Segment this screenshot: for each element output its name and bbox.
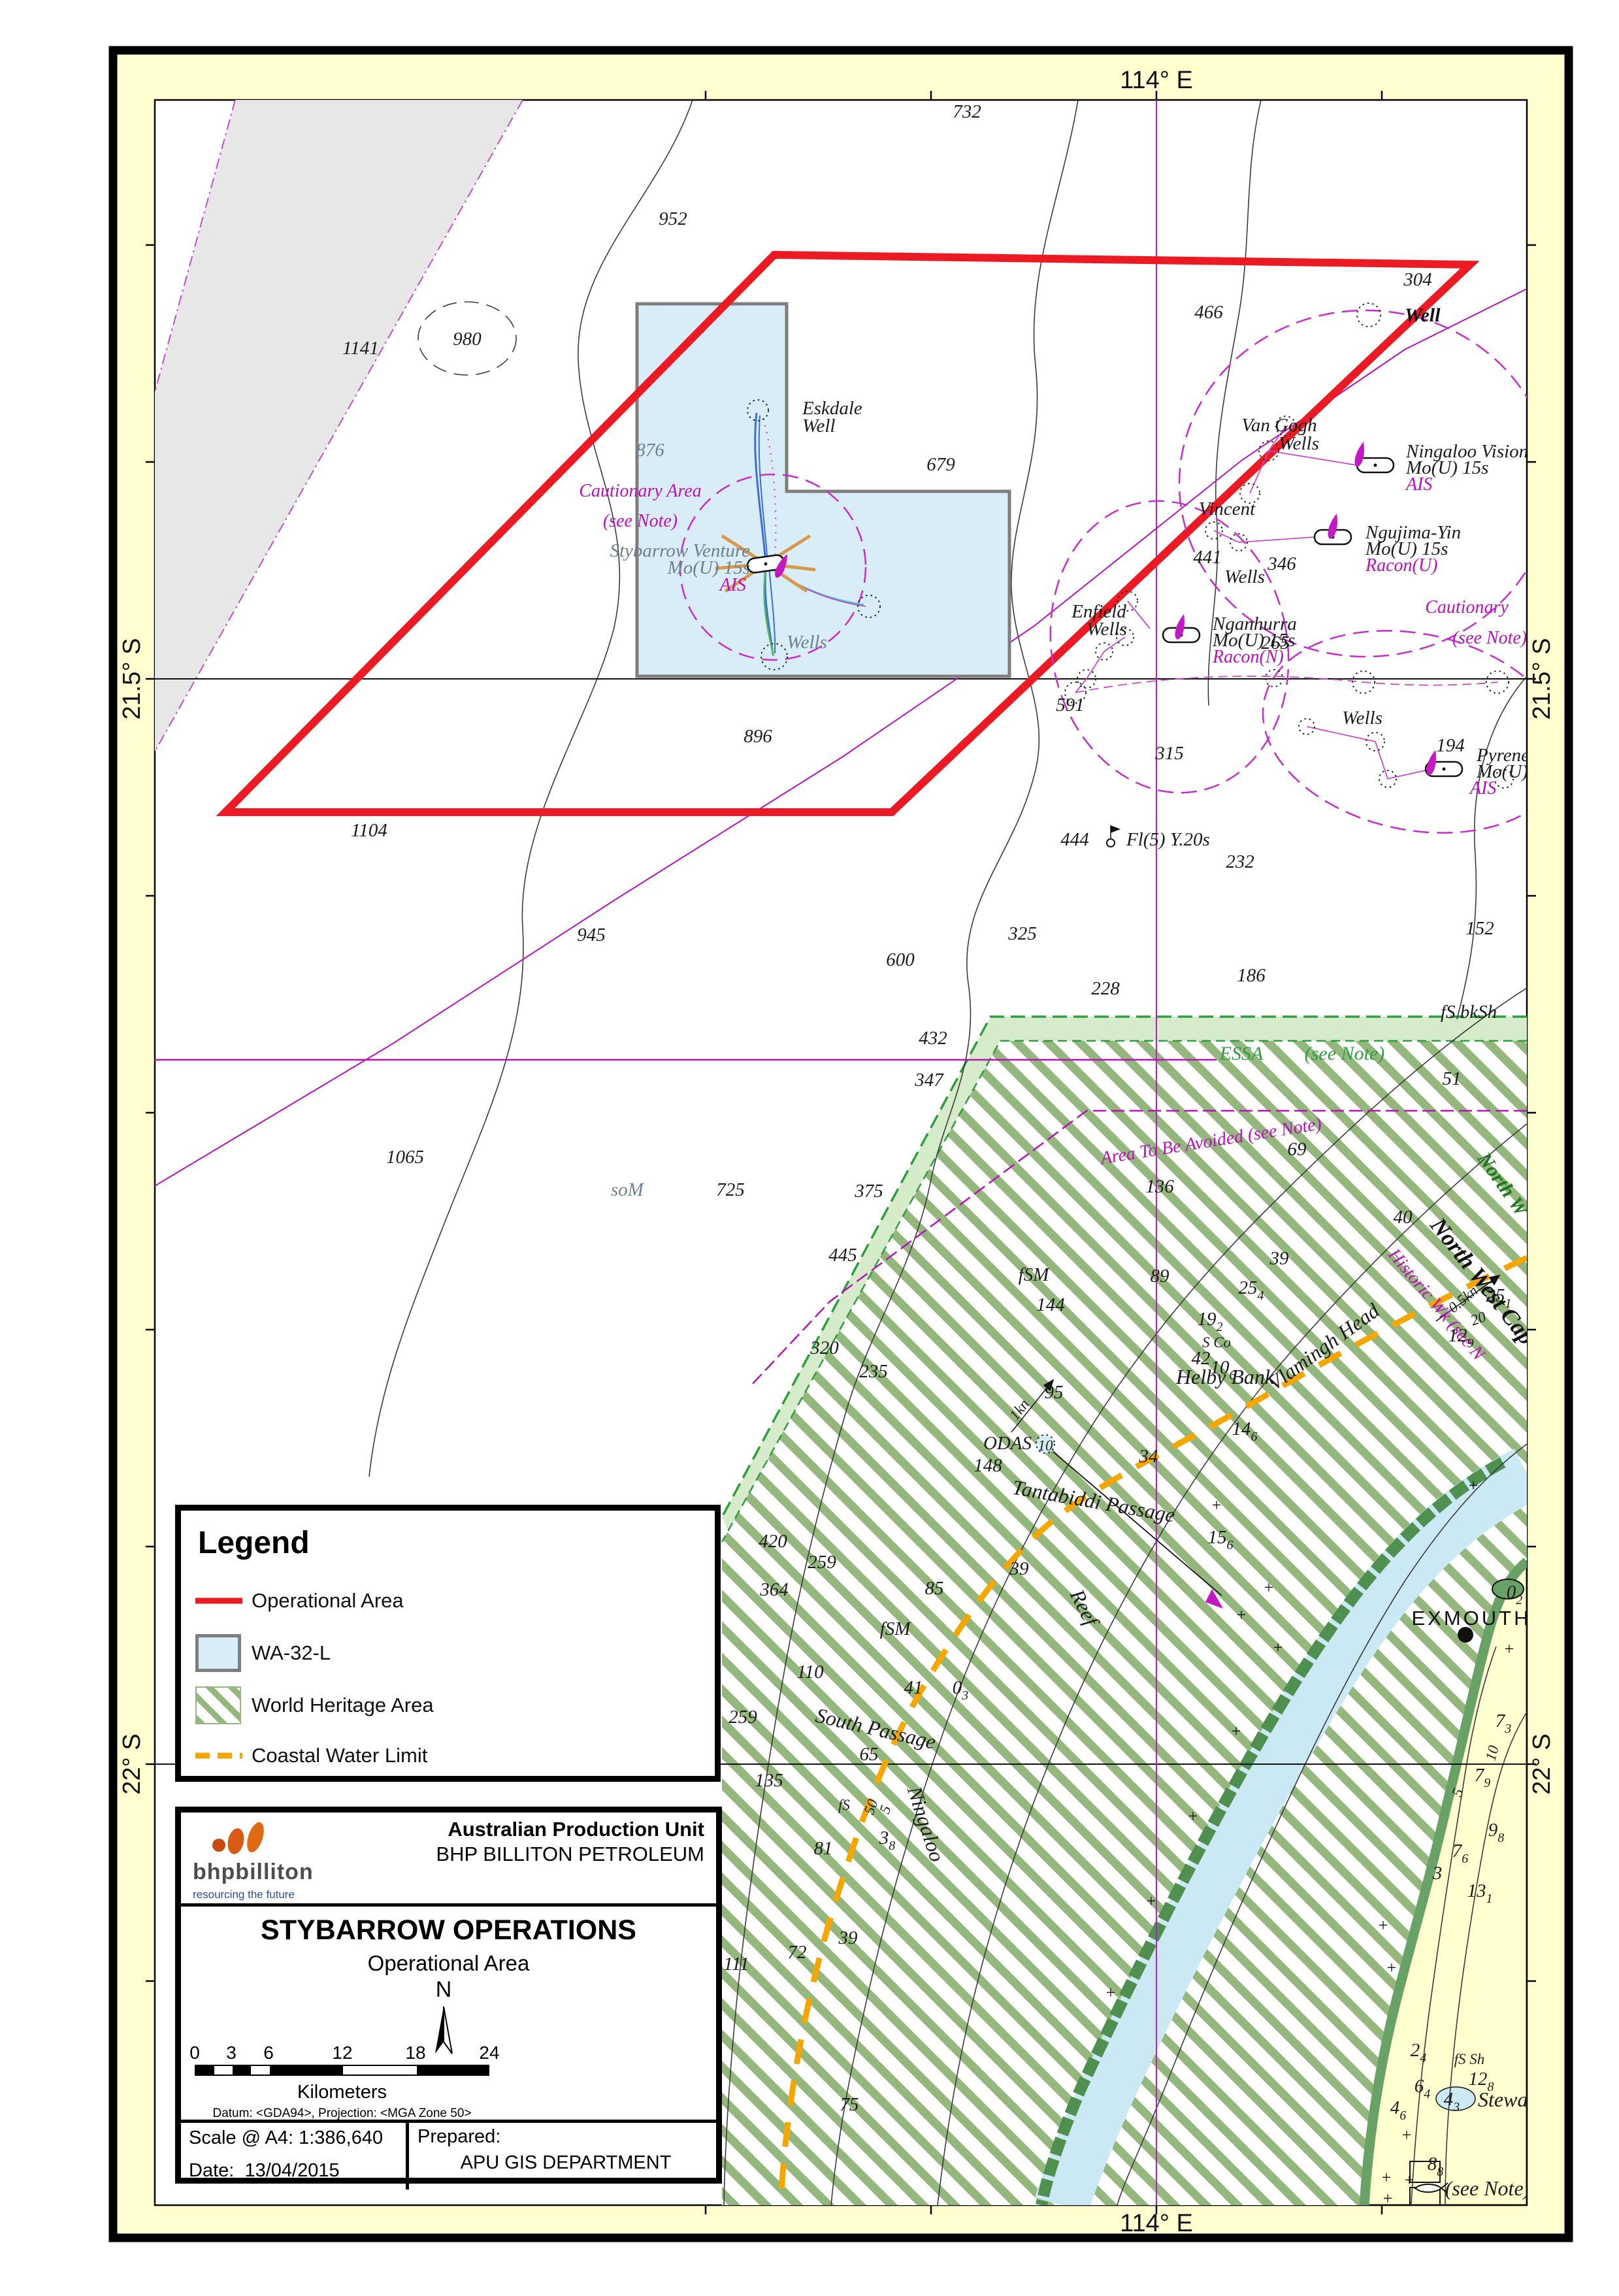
divider (181, 2120, 716, 2123)
margin-coordinate-label: 114° E (1120, 67, 1193, 94)
map-label: 364 (759, 1579, 789, 1600)
map-label: ESSA (1219, 1043, 1264, 1064)
map-label: 65 (860, 1744, 879, 1765)
rock-cross: + (1237, 1605, 1247, 1624)
map-label: 136 (1145, 1176, 1174, 1197)
map-label: 135 (755, 1770, 783, 1791)
map-label: fSM (880, 1618, 912, 1639)
map-label: 40 (1394, 1207, 1413, 1228)
map-label: Cautionary (1425, 597, 1509, 617)
legend-box: Legend Operational Area WA-32-L World He… (175, 1505, 721, 1782)
brand-name: bhpbilliton (193, 1860, 314, 1885)
chart-page: ++++++++++++++++ 73295298011418766794663… (0, 0, 1619, 2293)
map-label: 152 (1465, 918, 1494, 939)
map-label: 347 (914, 1070, 944, 1091)
map-label: Well (1405, 304, 1441, 326)
margin-coordinate-label: 22° S (1528, 1733, 1556, 1794)
map-title: STYBARROW OPERATIONS (181, 1914, 716, 1946)
legend-heritage-symbol (195, 1686, 241, 1724)
map-subtitle: Operational Area (181, 1951, 716, 1976)
legend-wa32l-symbol (195, 1634, 241, 1672)
scale-text: Scale @ A4: 1:386,640 (189, 2127, 383, 2149)
map-label: 194 (1436, 735, 1465, 756)
map-label: 600 (886, 949, 915, 970)
map-label: AIS (1469, 778, 1496, 798)
map-label: 265 (1261, 632, 1290, 653)
map-label: AIS (719, 575, 746, 595)
map-label: 75 (840, 2094, 859, 2115)
title-block: Australian Production Unit BHP BILLITON … (175, 1807, 722, 2184)
bhp-logo-icon (207, 1816, 279, 1862)
prepared-value: APU GIS DEPARTMENT (409, 2152, 723, 2174)
rock-cross: + (1383, 2189, 1393, 2208)
map-label: 466 (1194, 302, 1223, 323)
rock-cross: + (1405, 2171, 1415, 2189)
map-label: 945 (577, 925, 606, 945)
map-label: fS bkSh (1441, 1002, 1497, 1023)
map-label: 346 (1267, 553, 1296, 574)
date-text: Date: 13/04/2015 (189, 2160, 340, 2182)
map-label: 51 (1443, 1068, 1462, 1089)
rock-cross: + (1147, 1892, 1156, 1911)
map-label: EXMOUTH (1412, 1607, 1531, 1630)
map-label: Racon(U) (1365, 555, 1437, 576)
map-label: fS Sh (1454, 2051, 1485, 2067)
margin-coordinate-label: 22° S (118, 1733, 146, 1794)
legend-item-label: Operational Area (252, 1589, 404, 1613)
map-label: AIS (1405, 474, 1432, 495)
map-label: 1065 (386, 1147, 424, 1168)
divider (181, 1903, 716, 1907)
brand-tagline: resourcing the future (193, 1888, 295, 1901)
map-label: 1141 (342, 338, 379, 359)
map-label: (see Note) (1305, 1043, 1384, 1064)
map-label: 441 (1193, 547, 1222, 568)
map-label: 375 (854, 1181, 883, 1202)
rock-cross: + (1232, 1722, 1241, 1741)
rock-cross: + (1387, 1958, 1397, 1977)
map-label: 69 (1288, 1139, 1307, 1160)
north-label: N (429, 1977, 458, 2003)
map-label: soM (611, 1179, 645, 1200)
legend-item-label: WA-32-L (252, 1641, 331, 1665)
legend-item-label: World Heritage Area (252, 1694, 434, 1717)
map-label: fSM (1019, 1264, 1051, 1285)
map-label: 259 (728, 1707, 757, 1728)
map-label: 41 (904, 1677, 923, 1698)
map-label: 325 (1007, 923, 1037, 944)
map-label: 85 (925, 1578, 944, 1599)
map-label: 72 (788, 1942, 807, 1963)
scale-bar (195, 2065, 489, 2076)
map-label: Wells (1224, 566, 1265, 587)
rock-cross: + (1188, 1807, 1198, 1826)
map-label: 95 (1045, 1382, 1064, 1403)
legend-operational-area-symbol (195, 1598, 242, 1604)
map-label: 34 (1139, 1446, 1158, 1467)
map-label: 111 (723, 1954, 749, 1975)
map-label: 89 (1151, 1266, 1170, 1287)
map-label: 144 (1036, 1294, 1065, 1315)
map-label: 876 (636, 440, 664, 461)
map-label: 896 (744, 726, 772, 747)
datum-note: Datum: <GDA94>, Projection: <MGA Zone 50… (195, 2107, 489, 2121)
rock-cross: + (1505, 1639, 1514, 1658)
rock-cross: + (1273, 1638, 1283, 1657)
map-label: 1104 (351, 820, 387, 841)
map-label: Well (802, 416, 835, 436)
map-label: fS (838, 1797, 850, 1813)
map-label: Vincent (1199, 499, 1256, 519)
map-label: Wells (1279, 433, 1319, 454)
map-label: 110 (796, 1662, 824, 1682)
map-label: 39 (1269, 1248, 1290, 1269)
map-label: Fl(5) Y.20s (1126, 829, 1210, 850)
map-label: 952 (659, 208, 687, 229)
rock-cross: + (1106, 1983, 1116, 2002)
map-label: 235 (859, 1361, 888, 1382)
map-label: Cautionary Area (579, 481, 701, 501)
map-label: 228 (1091, 978, 1120, 999)
legend-coastal-limit-symbol (195, 1753, 242, 1759)
map-label: 3 (1432, 1863, 1443, 1884)
map-label: 81 (814, 1838, 833, 1859)
map-label: 259 (808, 1552, 836, 1573)
map-label: 39 (1009, 1558, 1030, 1579)
map-label: Wells (1342, 708, 1382, 729)
legend-item-label: Coastal Water Limit (252, 1744, 427, 1767)
rock-cross: + (1469, 1476, 1479, 1495)
map-label: 315 (1154, 743, 1184, 764)
map-label: 420 (759, 1531, 787, 1552)
map-label: 10 (1038, 1437, 1054, 1454)
map-label: 304 (1403, 269, 1432, 290)
prepared-label: Prepared: (417, 2126, 500, 2148)
rock-cross: + (1382, 2168, 1392, 2187)
scale-numbers: 0 3 6 12 18 24 (195, 2042, 489, 2062)
map-label: 445 (828, 1245, 857, 1266)
margin-coordinate-label: 21.5° S (1528, 638, 1556, 719)
map-label: ODAS (983, 1433, 1032, 1454)
map-label: Wells (787, 632, 827, 653)
map-label: 732 (953, 101, 981, 122)
map-label: 591 (1056, 695, 1085, 715)
map-label: (see Note) (1452, 628, 1527, 648)
map-label: 232 (1226, 851, 1254, 872)
map-label: Helby Bank (1175, 1365, 1275, 1388)
map-label: 148 (973, 1455, 1002, 1476)
rock-cross: + (1212, 1496, 1222, 1515)
map-label: 186 (1237, 965, 1266, 986)
margin-coordinate-label: 21.5° S (118, 638, 146, 719)
map-label: 444 (1060, 829, 1089, 850)
map-label: 980 (453, 329, 482, 350)
map-label: 39 (838, 1927, 859, 1948)
legend-title: Legend (198, 1525, 310, 1561)
map-label: 320 (810, 1337, 839, 1358)
map-label: (see Note) (1445, 2176, 1531, 2200)
rock-cross: + (1379, 1916, 1388, 1935)
scale-unit: Kilometers (195, 2082, 489, 2103)
map-label: 725 (716, 1179, 745, 1200)
map-label: 432 (919, 1028, 947, 1049)
rock-cross: + (1264, 1578, 1274, 1597)
map-label: Wells (1087, 619, 1127, 640)
map-label: (see Note) (603, 511, 678, 531)
org-line1: Australian Production Unit (448, 1818, 704, 1841)
org-line2: BHP BILLITON PETROLEUM (436, 1843, 704, 1866)
margin-coordinate-label: 114° E (1120, 2210, 1193, 2237)
map-label: 679 (926, 454, 955, 475)
rock-cross: + (1402, 2125, 1412, 2144)
